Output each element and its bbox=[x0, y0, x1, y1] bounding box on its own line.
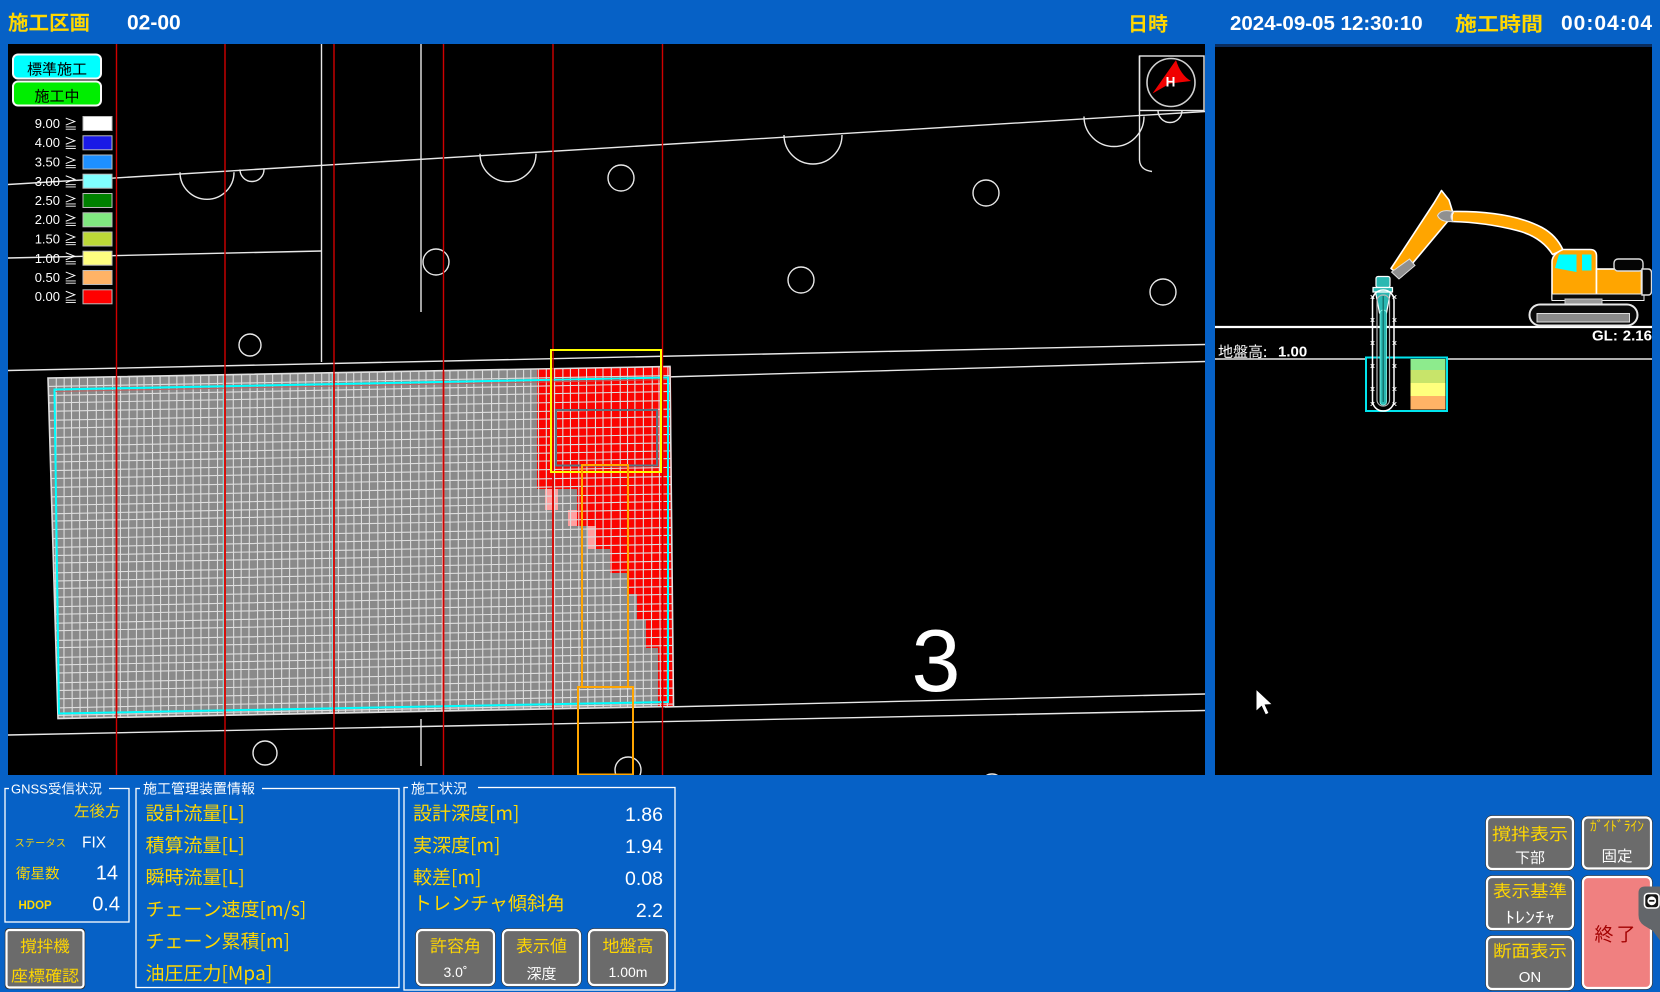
svg-text:1.86: 1.86 bbox=[625, 804, 663, 826]
svg-text:FIX: FIX bbox=[82, 835, 107, 852]
svg-text:H: H bbox=[1166, 75, 1176, 90]
svg-text:2.16: 2.16 bbox=[1623, 328, 1652, 345]
svg-text:02-00: 02-00 bbox=[127, 12, 181, 35]
svg-text:0.08: 0.08 bbox=[625, 868, 663, 890]
svg-text:4.00: 4.00 bbox=[35, 135, 60, 150]
svg-text:2.2: 2.2 bbox=[636, 900, 663, 922]
svg-text:2.00: 2.00 bbox=[35, 212, 60, 227]
svg-text:3.0˚: 3.0˚ bbox=[443, 964, 467, 980]
svg-text:1.00m: 1.00m bbox=[609, 964, 648, 980]
svg-text:3.00: 3.00 bbox=[35, 174, 60, 189]
svg-text:3: 3 bbox=[912, 611, 961, 710]
svg-text:3.50: 3.50 bbox=[35, 155, 60, 170]
svg-text:0.00: 0.00 bbox=[35, 289, 60, 304]
svg-text:1.50: 1.50 bbox=[35, 232, 60, 247]
svg-text:1.94: 1.94 bbox=[625, 836, 663, 858]
svg-text:0.4: 0.4 bbox=[92, 894, 120, 916]
svg-text:0.50: 0.50 bbox=[35, 270, 60, 285]
svg-text:9.00: 9.00 bbox=[35, 116, 60, 131]
svg-text:00:04:04: 00:04:04 bbox=[1561, 12, 1653, 35]
svg-text:14: 14 bbox=[96, 863, 118, 885]
svg-text:HDOP: HDOP bbox=[19, 900, 53, 912]
svg-text:1.00: 1.00 bbox=[1278, 344, 1307, 361]
svg-text:2024-09-05 12:30:10: 2024-09-05 12:30:10 bbox=[1230, 12, 1423, 35]
svg-text:ON: ON bbox=[1519, 969, 1542, 986]
svg-text:2.50: 2.50 bbox=[35, 193, 60, 208]
svg-text:GNSS: GNSS bbox=[11, 782, 48, 797]
svg-text:1.00: 1.00 bbox=[35, 251, 60, 266]
svg-text:GL:: GL: bbox=[1592, 328, 1618, 345]
